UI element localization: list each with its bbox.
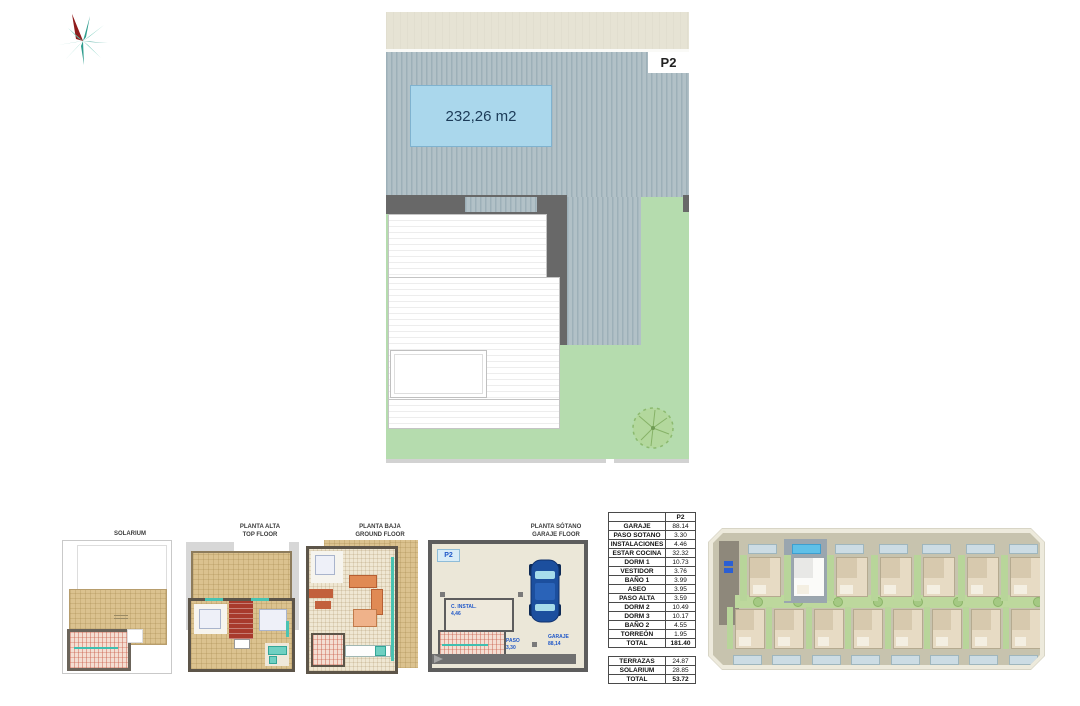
bathroom <box>265 643 289 666</box>
porch-patch <box>884 585 897 594</box>
map-plot <box>740 539 783 603</box>
map-plot <box>924 603 963 665</box>
house-footprint <box>880 557 912 597</box>
porch-patch <box>753 585 766 594</box>
row-label: DORM 2 <box>609 603 666 612</box>
plot-label-chip <box>891 655 920 665</box>
garden-strip <box>958 555 965 601</box>
street-band <box>386 12 689 52</box>
row-value: 4.46 <box>666 540 696 549</box>
stair-rail <box>442 644 488 646</box>
garden-strip <box>963 607 969 649</box>
terraces-table: TERRAZAS24.87SOLARIUM28.85TOTAL53.72 <box>608 656 696 684</box>
table-row: TOTAL181.40 <box>609 639 696 648</box>
plan-sheet: 232,26 m2 P2 SOLARIUM PLANTA ALTA TOP FL… <box>0 0 1080 706</box>
solarium-stairwell <box>67 629 131 671</box>
row-value: 32.32 <box>666 549 696 558</box>
row-label: SOLARIUM <box>609 666 666 675</box>
table-row: DORM 110.73 <box>609 558 696 567</box>
table-row: TORREÓN1.95 <box>609 630 696 639</box>
map-plot <box>914 539 957 603</box>
house-footprint <box>967 557 999 597</box>
sidewalk-segment <box>614 459 689 463</box>
garden-strip <box>924 607 930 649</box>
house-footprint <box>814 609 844 649</box>
roof-patch <box>854 610 872 630</box>
house-footprint <box>932 609 962 649</box>
porch-patch <box>971 585 984 594</box>
plot-label-chip <box>966 544 995 554</box>
deck-area-text <box>114 614 128 619</box>
porch-patch <box>778 637 790 646</box>
planta-baja-title: PLANTA BAJA GROUND FLOOR <box>335 524 425 540</box>
sign-icon <box>724 568 733 573</box>
roof-patch <box>750 558 770 578</box>
bed <box>199 609 221 629</box>
floor-plan-baja <box>306 540 418 678</box>
row-label: TERRAZAS <box>609 657 666 666</box>
row-value: 10.17 <box>666 612 696 621</box>
areas-table: P2 GARAJE88.14PASO SOTANO3.30INSTALACION… <box>608 512 696 648</box>
garden-strip <box>766 607 772 649</box>
solarium-title: SOLARIUM <box>85 531 175 539</box>
sign-icon <box>724 561 733 566</box>
porch-patch <box>936 637 948 646</box>
row-value: 3.76 <box>666 567 696 576</box>
row-label: TORREÓN <box>609 630 666 639</box>
garden-strip <box>827 555 834 601</box>
row-value: 53.72 <box>666 675 696 684</box>
terrace-inner-box <box>390 350 487 398</box>
map-plot <box>827 539 870 603</box>
table-row: TERRAZAS24.87 <box>609 657 696 666</box>
table-row: PASO SOTANO3.30 <box>609 531 696 540</box>
column <box>518 592 523 597</box>
row-value: 88.14 <box>666 522 696 531</box>
planta-alta-title: PLANTA ALTA TOP FLOOR <box>215 524 305 540</box>
garden-strip <box>806 607 812 649</box>
ramp-arrow <box>434 655 443 663</box>
column <box>532 642 537 647</box>
plot-label-chip <box>922 544 951 554</box>
porch-patch <box>896 637 908 646</box>
plot-label-chip <box>969 655 998 665</box>
tree-icon <box>629 404 677 452</box>
porch-patch <box>739 637 751 646</box>
table-row: VESTIDOR3.76 <box>609 567 696 576</box>
alta-rooms <box>188 598 295 672</box>
table-row: PASO ALTA3.59 <box>609 594 696 603</box>
roof-patch <box>894 610 912 630</box>
row-value: 24.87 <box>666 657 696 666</box>
roof-patch <box>736 610 754 630</box>
window-sill <box>286 621 289 637</box>
row-label: DORM 3 <box>609 612 666 621</box>
row-value: 4.55 <box>666 621 696 630</box>
glazing <box>391 557 394 661</box>
garden-strip <box>914 555 921 601</box>
sofa <box>349 575 377 588</box>
terrace-upper <box>388 214 547 279</box>
row-label: INSTALACIONES <box>609 540 666 549</box>
wardrobe <box>309 589 333 598</box>
porch-patch <box>927 585 940 594</box>
sidewalk-segment <box>386 459 606 463</box>
row-label: ESTAR COCINA <box>609 549 666 558</box>
table-row: DORM 310.17 <box>609 612 696 621</box>
porch-patch <box>1015 637 1027 646</box>
plot-label-chip <box>1009 544 1038 554</box>
roof-patch <box>775 610 793 630</box>
row-value: 1.95 <box>666 630 696 639</box>
garden-strip <box>784 555 791 601</box>
porch-patch <box>975 637 987 646</box>
row-label: BAÑO 2 <box>609 621 666 630</box>
map-plot-highlighted <box>784 539 827 603</box>
plot-label-chip <box>930 655 959 665</box>
map-plot <box>845 603 884 665</box>
garden-strip <box>1001 555 1008 601</box>
row-label: TOTAL <box>609 639 666 648</box>
plot-label-chip <box>748 544 777 554</box>
utility-room: C. INSTAL. 4,46 <box>444 598 514 632</box>
row-value: 181.40 <box>666 639 696 648</box>
bathtub <box>268 646 287 655</box>
floor-plan-alta <box>186 540 299 675</box>
roof-hatch <box>127 629 143 643</box>
house-footprint <box>1010 557 1042 597</box>
map-plot <box>871 539 914 603</box>
column <box>440 592 445 597</box>
roof-patch <box>837 558 857 578</box>
wardrobe <box>315 601 331 609</box>
garage-ramp <box>432 654 576 664</box>
plot-label-chip <box>812 655 841 665</box>
garden-strip <box>740 555 747 601</box>
row-label: TOTAL <box>609 675 666 684</box>
site-plan: 232,26 m2 P2 <box>386 52 689 462</box>
house-footprint <box>1011 609 1041 649</box>
table-row: ESTAR COCINA32.32 <box>609 549 696 558</box>
row-value: 3.99 <box>666 576 696 585</box>
map-plot <box>1003 603 1042 665</box>
row-label: BAÑO 1 <box>609 576 666 585</box>
planta-sotano-title: PLANTA SÓTANO GARAJE FLOOR <box>511 524 601 540</box>
car-icon <box>528 558 562 626</box>
row-value: 28.85 <box>666 666 696 675</box>
roof-edge-corner <box>683 195 689 212</box>
plot-badge: P2 <box>648 52 689 73</box>
table-row: BAÑO 13.99 <box>609 576 696 585</box>
stair-rail <box>74 647 118 649</box>
table-row: GARAJE88.14 <box>609 522 696 531</box>
paso-label: PASO 3,30 <box>506 638 520 651</box>
baja-rooms <box>306 546 398 674</box>
site-map <box>708 528 1045 670</box>
house-footprint <box>923 557 955 597</box>
plot-area-label: 232,26 m2 <box>446 108 517 125</box>
table-row: INSTALACIONES4.46 <box>609 540 696 549</box>
row-label: PASO ALTA <box>609 594 666 603</box>
row-value: 3.30 <box>666 531 696 540</box>
floor-plan-sotano: P2 C. INSTAL. 4,46 PASO 3,30 <box>428 540 588 672</box>
map-plot <box>1001 539 1044 603</box>
map-plot <box>963 603 1002 665</box>
sink <box>375 646 386 656</box>
roof-patch <box>924 558 944 578</box>
table-row: DORM 210.49 <box>609 603 696 612</box>
utility-room-label: C. INSTAL. <box>451 604 476 610</box>
garden-strip <box>871 555 878 601</box>
house-footprint <box>853 609 883 649</box>
house-footprint <box>836 557 868 597</box>
porch-patch <box>818 637 830 646</box>
plot-label-chip <box>792 544 821 554</box>
plot-label-chip <box>835 544 864 554</box>
house-footprint <box>735 609 765 649</box>
plot-area-box: 232,26 m2 <box>410 85 552 147</box>
map-plot <box>766 603 805 665</box>
garden-strip <box>845 607 851 649</box>
roof-patch <box>1011 558 1031 578</box>
roof-patch <box>972 610 990 630</box>
map-plot <box>885 603 924 665</box>
garden-strip <box>885 607 891 649</box>
compass-icon <box>56 12 112 68</box>
window-sill <box>205 598 223 601</box>
row-value: 3.59 <box>666 594 696 603</box>
row-label: VESTIDOR <box>609 567 666 576</box>
roof-patch <box>881 558 901 578</box>
sotano-badge: P2 <box>437 549 460 562</box>
roof-patch <box>815 610 833 630</box>
row-label: PASO SOTANO <box>609 531 666 540</box>
map-plot <box>727 603 766 665</box>
porch-patch <box>857 637 869 646</box>
roof-patch <box>1012 610 1030 630</box>
porch-patch <box>797 585 810 594</box>
garden-strip <box>727 607 733 649</box>
row-label: ASEO <box>609 585 666 594</box>
roof-notch <box>465 197 537 212</box>
porch-patch <box>1014 585 1027 594</box>
house-footprint <box>749 557 781 597</box>
plot-label-chip <box>733 655 762 665</box>
garden-strip <box>1003 607 1009 649</box>
roof-patch <box>794 558 814 578</box>
table-header-row: P2 <box>609 513 696 522</box>
row-label: DORM 1 <box>609 558 666 567</box>
bed <box>315 555 335 575</box>
house-footprint <box>971 609 1001 649</box>
window-sill <box>251 598 269 601</box>
row-value: 10.73 <box>666 558 696 567</box>
plot-label-chip <box>851 655 880 665</box>
terrace-lower <box>388 399 560 429</box>
roof-patch <box>968 558 988 578</box>
roof-patch <box>933 610 951 630</box>
roof-deck-right <box>567 197 641 345</box>
utility-room-area: 4,46 <box>451 611 461 617</box>
map-plot <box>958 539 1001 603</box>
house-footprint <box>774 609 804 649</box>
table-header-cell: P2 <box>666 513 696 522</box>
row-label: GARAJE <box>609 522 666 531</box>
upper-terrace <box>191 551 292 602</box>
areas-table-body: GARAJE88.14PASO SOTANO3.30INSTALACIONES4… <box>609 522 696 648</box>
staircase <box>229 601 253 639</box>
plot-label-chip <box>879 544 908 554</box>
toilet <box>269 656 277 664</box>
floor-plan-solarium <box>62 540 172 674</box>
map-plot <box>806 603 845 665</box>
bed <box>259 609 287 631</box>
stair-landing <box>234 639 250 649</box>
porch-patch <box>840 585 853 594</box>
table-row: BAÑO 24.55 <box>609 621 696 630</box>
row-value: 10.49 <box>666 603 696 612</box>
dining-table <box>353 609 377 627</box>
map-road <box>713 533 1040 665</box>
terraces-table-body: TERRAZAS24.87SOLARIUM28.85TOTAL53.72 <box>609 657 696 684</box>
house-footprint <box>793 557 825 597</box>
row-value: 3.95 <box>666 585 696 594</box>
staircase <box>311 633 345 667</box>
table-row: TOTAL53.72 <box>609 675 696 684</box>
table-row: SOLARIUM28.85 <box>609 666 696 675</box>
garaje-label: GARAJE 88,14 <box>548 634 569 647</box>
table-row: ASEO3.95 <box>609 585 696 594</box>
plot-label-chip <box>772 655 801 665</box>
house-footprint <box>893 609 923 649</box>
